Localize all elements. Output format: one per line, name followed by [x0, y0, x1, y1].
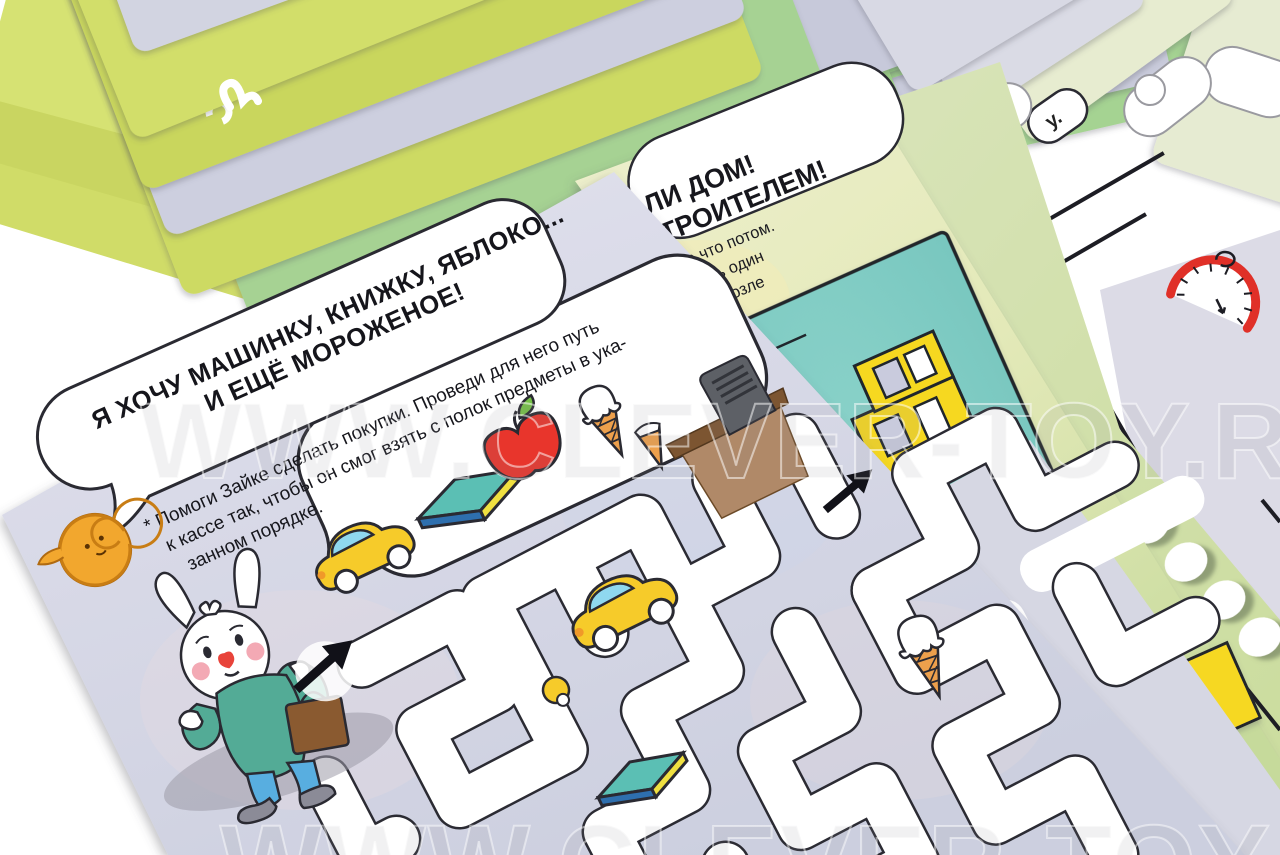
svg-text:WWW.CLEVER-TOY.RU: WWW.CLEVER-TOY.RU — [140, 380, 1280, 501]
svg-text:WWW.CLEVER-TOY.RU: WWW.CLEVER-TOY.RU — [220, 802, 1280, 855]
